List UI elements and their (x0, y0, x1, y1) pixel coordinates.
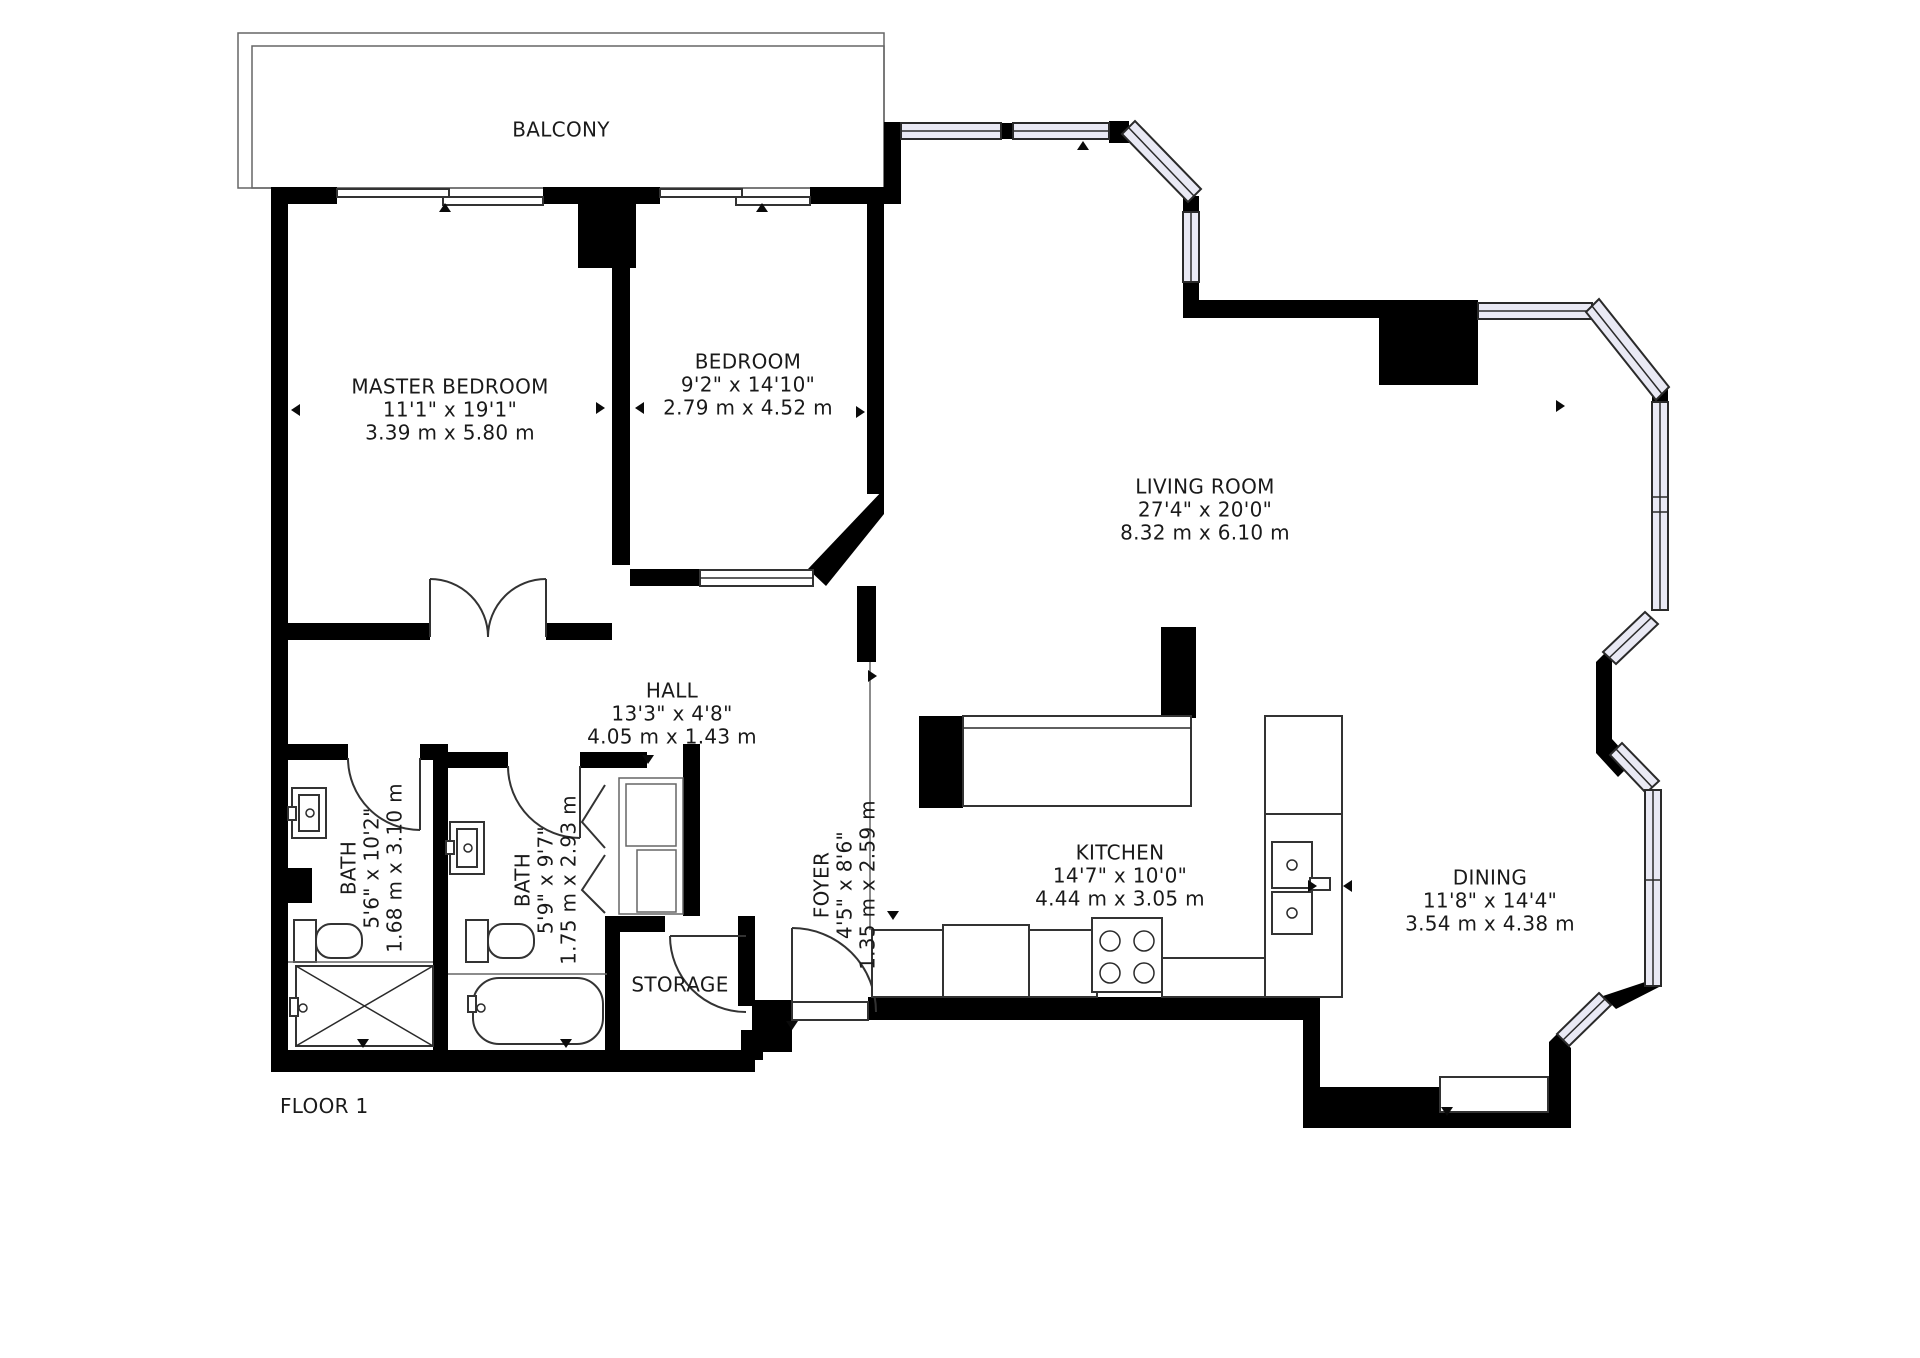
balcony-door-window (443, 197, 543, 205)
room-label-dining: DINING 11'8" x 14'4" 3.54 m x 4.38 m (1405, 867, 1575, 936)
room-label-bath-1: BATH 5'6" x 10'2" 1.68 m x 3.10 m (338, 783, 407, 953)
balcony-outline (238, 33, 884, 188)
kitchen-sink (1272, 892, 1312, 934)
balcony-door-window (660, 189, 742, 197)
floorplan-drawing (0, 0, 1920, 1358)
room-label-bedroom: BEDROOM 9'2" x 14'10" 2.79 m x 4.52 m (663, 351, 833, 420)
room-label-bath-2: BATH 5'9" x 9'7" 1.75 m x 2.93 m (512, 795, 581, 965)
room-label-living-room: LIVING ROOM 27'4" x 20'0" 8.32 m x 6.10 … (1120, 476, 1290, 545)
dining-window-niche (1440, 1077, 1548, 1112)
bathtub (473, 978, 603, 1044)
room-label-kitchen: KITCHEN 14'7" x 10'0" 4.44 m x 3.05 m (1035, 842, 1205, 911)
room-label-master-bedroom: MASTER BEDROOM 11'1" x 19'1" 3.39 m x 5.… (351, 376, 548, 445)
room-label-foyer: FOYER 4'5" x 8'6" 1.35 m x 2.59 m (811, 800, 880, 970)
room-label-storage: STORAGE (631, 974, 728, 997)
balcony-door-window (337, 189, 449, 197)
floor-title: FLOOR 1 (280, 1094, 369, 1118)
kitchen-sink (1272, 842, 1312, 888)
refrigerator (1265, 716, 1342, 814)
balcony-label: BALCONY (512, 119, 610, 142)
floor-plan: BALCONY MASTER BEDROOM 11'1" x 19'1" 3.3… (0, 0, 1920, 1358)
room-label-hall: HALL 13'3" x 4'8" 4.05 m x 1.43 m (587, 680, 757, 749)
dishwasher (943, 925, 1029, 997)
kitchen-island (963, 716, 1191, 806)
bath1-toilet (294, 920, 316, 962)
balcony-door-window (736, 197, 810, 205)
entry-threshold (792, 1002, 868, 1020)
stove (1092, 918, 1162, 992)
bath2-toilet (466, 920, 488, 962)
